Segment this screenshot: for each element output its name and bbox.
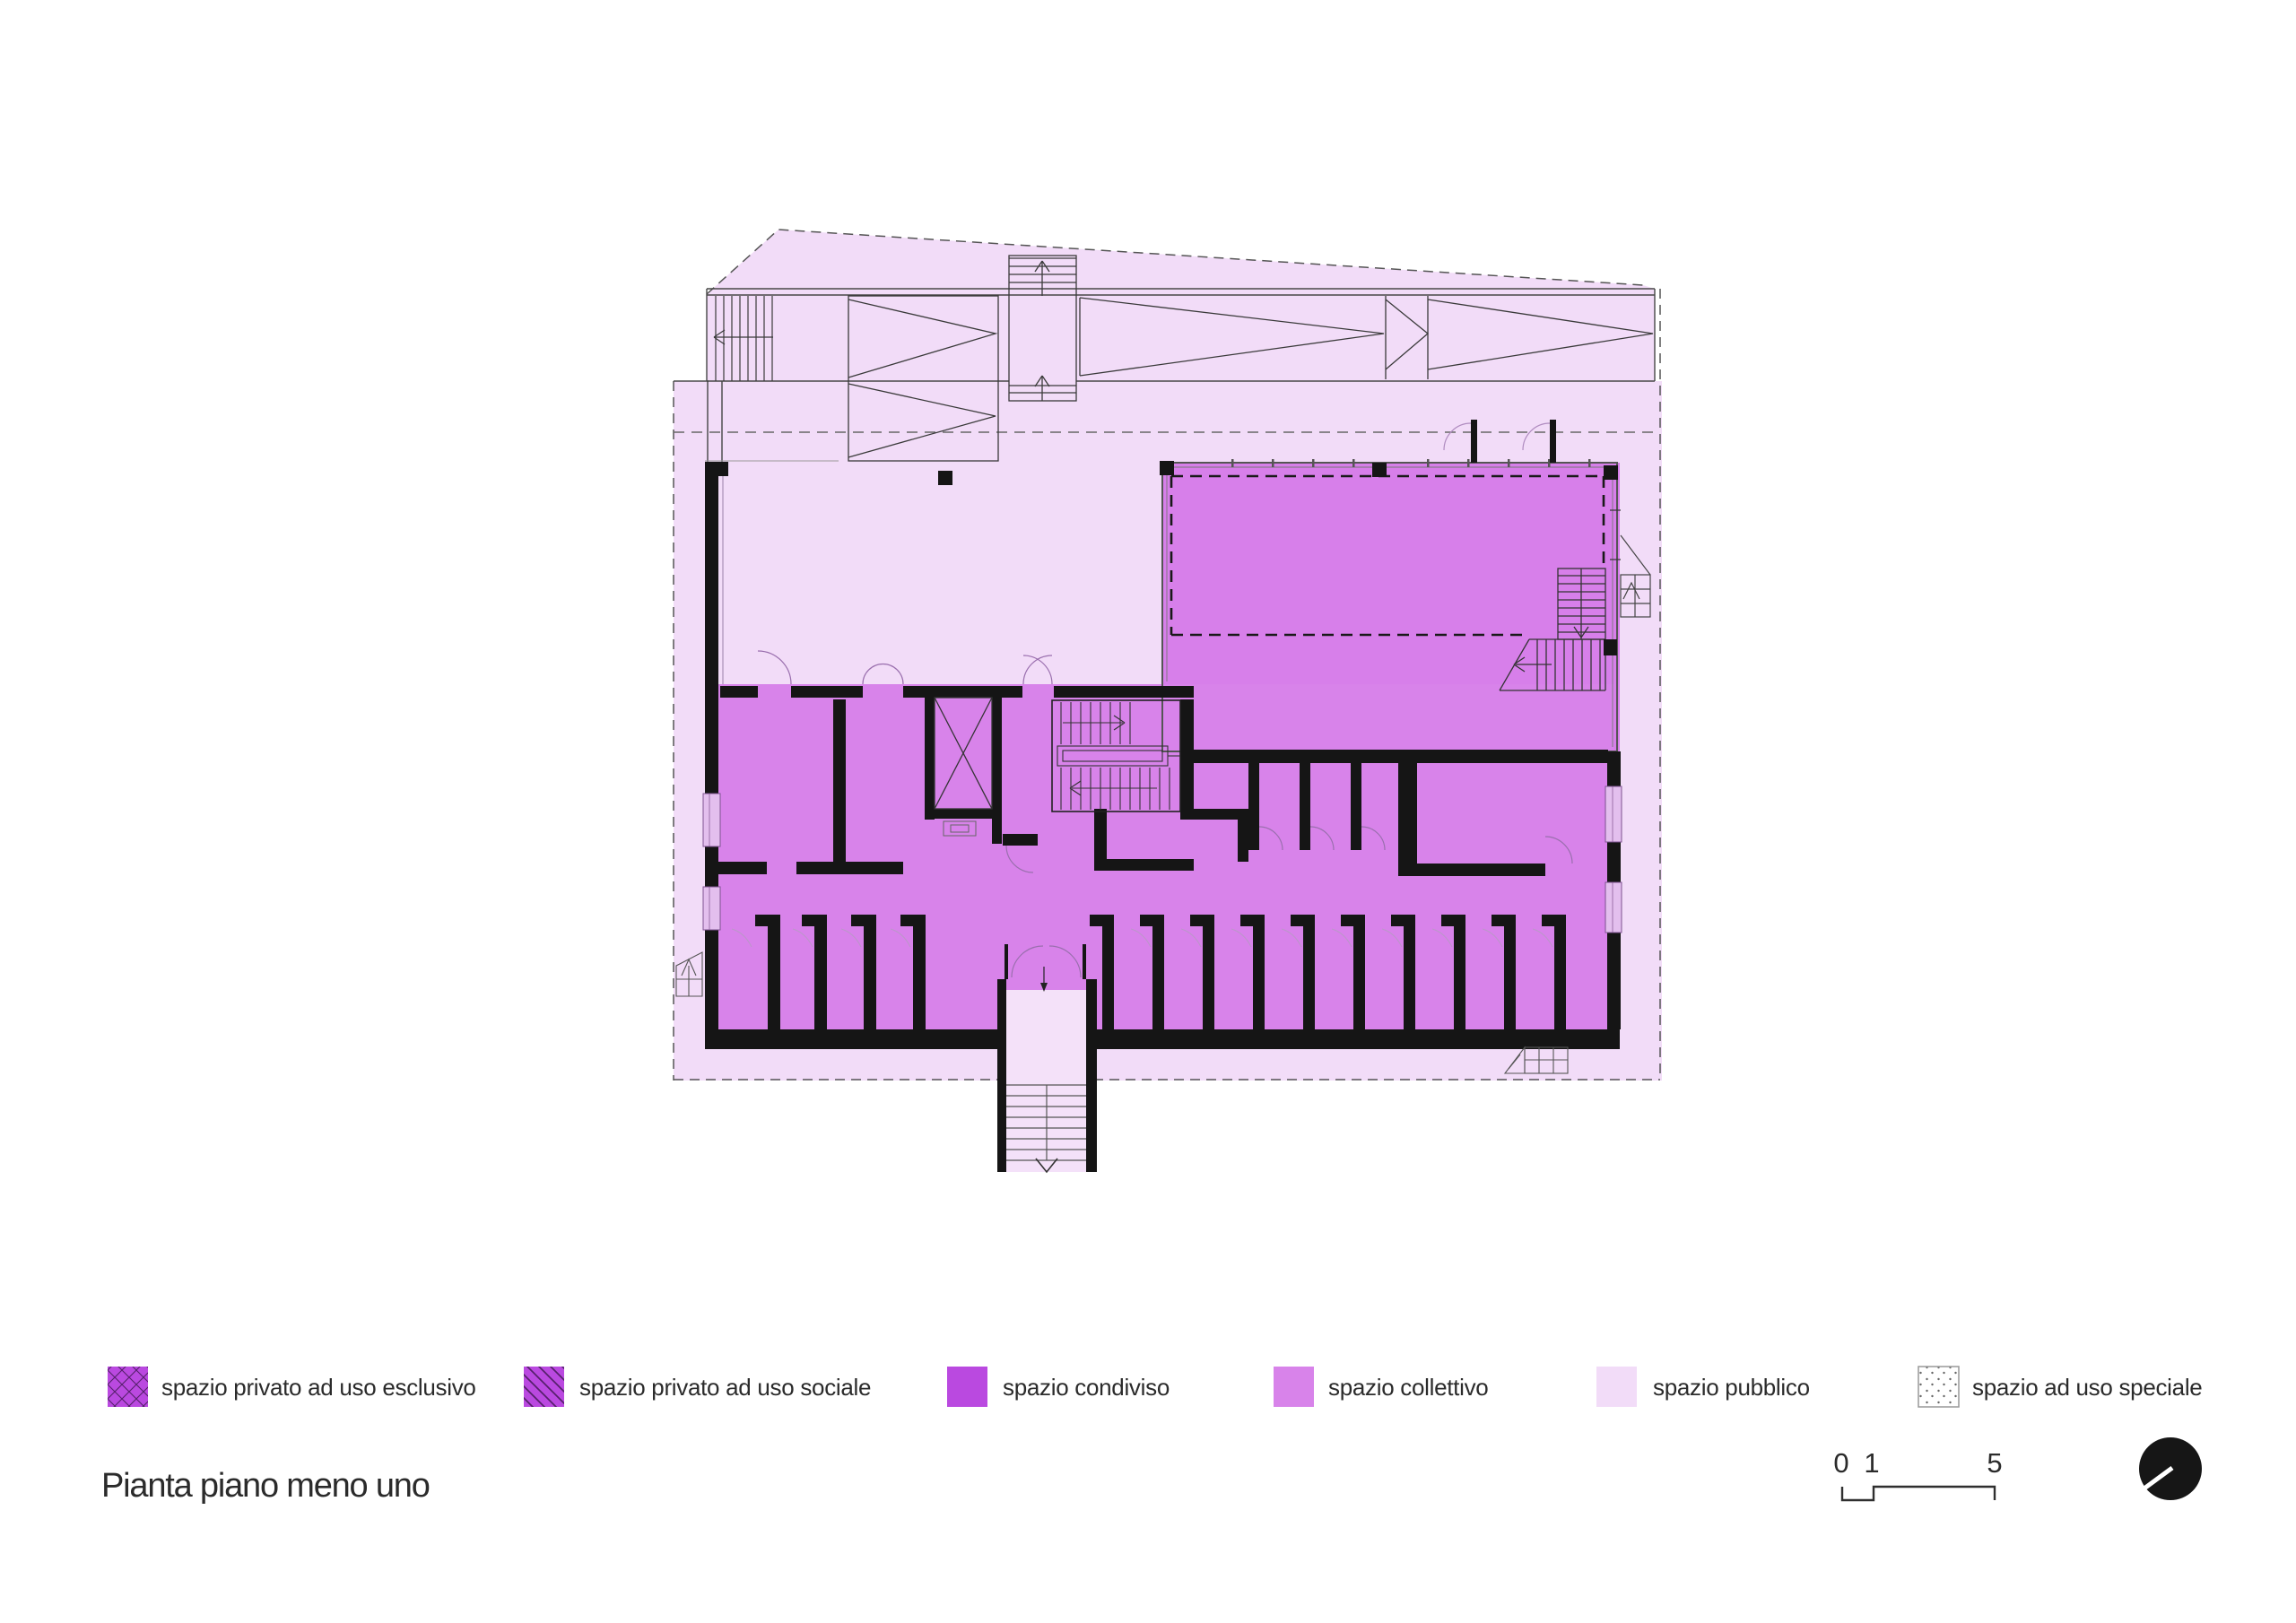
svg-text:spazio ad uso speciale: spazio ad uso speciale xyxy=(1972,1374,2202,1401)
svg-text:spazio condiviso: spazio condiviso xyxy=(1003,1374,1170,1401)
svg-text:spazio privato ad uso sociale: spazio privato ad uso sociale xyxy=(579,1374,871,1401)
svg-text:spazio collettivo: spazio collettivo xyxy=(1328,1374,1488,1401)
svg-text:Pianta piano meno uno: Pianta piano meno uno xyxy=(101,1467,430,1505)
svg-text:spazio privato ad uso esclusiv: spazio privato ad uso esclusivo xyxy=(161,1374,476,1401)
svg-text:0: 0 xyxy=(1833,1447,1848,1479)
svg-text:spazio pubblico: spazio pubblico xyxy=(1653,1374,1810,1401)
svg-text:5: 5 xyxy=(1987,1447,2002,1479)
svg-text:1: 1 xyxy=(1864,1447,1879,1479)
